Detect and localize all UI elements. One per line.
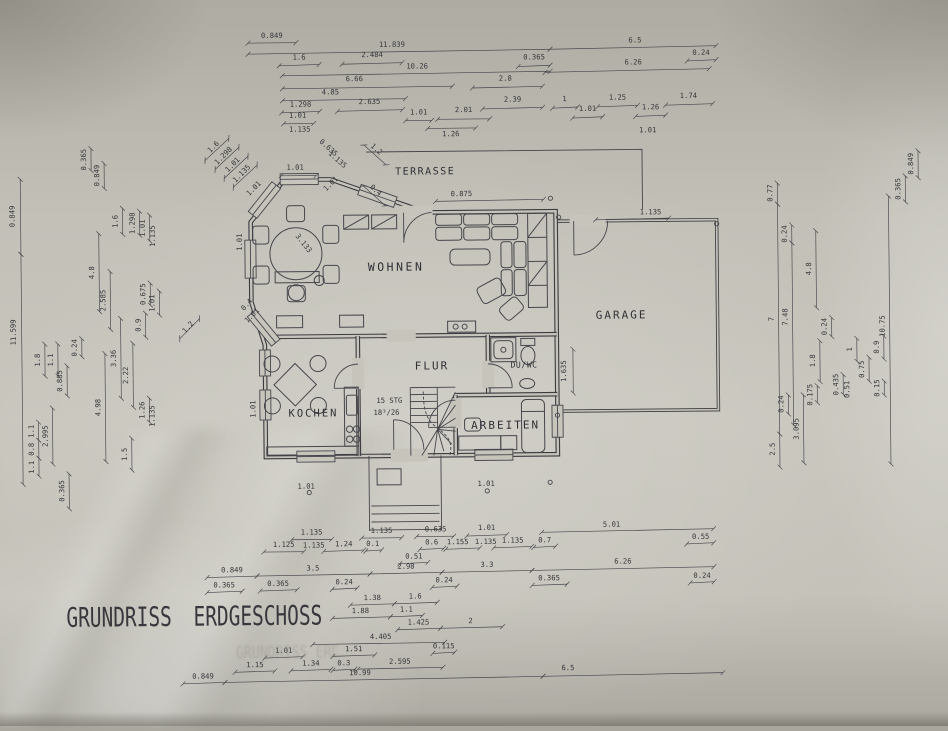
dimension-label: 1.8 <box>808 354 817 367</box>
dimension-label: 1.5 <box>120 448 129 461</box>
dimension-label: 2.585 <box>98 290 107 312</box>
dimension-label: 1.8 <box>33 354 42 367</box>
dimension-label: 0.6 <box>425 537 438 546</box>
dimension-label: 3.095 <box>792 418 801 440</box>
dim-line <box>370 572 442 574</box>
dim-line <box>446 548 480 549</box>
dimension-label: 0.51 <box>405 552 422 561</box>
dim-line <box>366 550 382 551</box>
dimension-label: 6.26 <box>614 556 631 565</box>
dimension-label: 1.01 <box>244 179 263 198</box>
dimension-label: 4.8 <box>804 262 813 275</box>
dimension-label: 1.135 <box>303 540 325 549</box>
dimension-label: 0.365 <box>538 573 560 582</box>
dim-line <box>207 576 257 577</box>
dimension-label: 1.74 <box>680 91 697 100</box>
dimension-label: 1.635 <box>559 360 568 382</box>
corner-marker <box>485 489 489 493</box>
photo-of-floor-plan: 0.84911.8396.51.62.4840.3650.2410.266.26… <box>0 0 948 726</box>
dim-line <box>121 318 122 398</box>
dimension-label: 3.133 <box>294 232 315 255</box>
room-label-duwc: DU/WC <box>510 359 537 369</box>
dim-line <box>598 105 638 106</box>
dimension-label: 4.405 <box>370 632 392 641</box>
dim-line <box>666 104 713 105</box>
dimension-label: 1.01 <box>147 294 156 311</box>
window <box>475 449 513 460</box>
dimension-label: 0.55 <box>692 532 709 541</box>
dim-line <box>532 584 567 585</box>
dim-line <box>282 86 452 89</box>
dimension-label: 10.99 <box>349 668 371 677</box>
dim-line <box>235 671 275 672</box>
dimension-label: 0.8 <box>27 443 36 456</box>
dim-line <box>394 602 437 603</box>
dimension-label: 1.01 <box>579 104 596 113</box>
dimension-label: 11.839 <box>379 40 405 49</box>
dimension-label: 0.365 <box>893 178 902 200</box>
dimension-label: 0.849 <box>221 565 243 574</box>
dimension-label: 2.635 <box>359 97 381 106</box>
dim-line <box>494 546 532 547</box>
dimension-label: 0.51 <box>842 381 851 398</box>
dimension-label: 1.88 <box>352 606 369 615</box>
dimension-label: 0.3 <box>337 658 350 667</box>
dimension-label: 2.484 <box>361 50 383 59</box>
dim-line <box>279 64 319 65</box>
dimension-label: 0.9 <box>134 319 143 332</box>
dim-line <box>472 86 542 88</box>
dimension-label: 1.1 <box>46 354 55 367</box>
dim-line <box>518 65 550 66</box>
dim-line <box>257 574 370 576</box>
dim-line <box>687 60 716 61</box>
dimension-label: 0.24 <box>692 48 709 57</box>
dimension-label: 2.01 <box>455 105 472 114</box>
dimension-label: 1.01 <box>235 234 244 251</box>
dimension-label: 2.39 <box>504 95 521 104</box>
room-label-arbeiten: ARBEITEN <box>471 418 540 432</box>
dimension-label: 0.15 <box>872 379 881 396</box>
stairs-note: 18³/26 <box>373 408 399 417</box>
dimension-label: 2.22 <box>121 367 130 384</box>
dimension-label: 1.1 <box>27 425 36 438</box>
dimension-label: 0.7 <box>538 535 551 544</box>
dimension-label: 1.01 <box>286 163 303 172</box>
dim-line <box>467 535 507 536</box>
dim-line <box>52 408 53 464</box>
dimension-label: 1.135 <box>147 405 156 427</box>
dim-line <box>338 110 403 112</box>
dimension-label: 4.8 <box>87 266 96 279</box>
dimension-label: 1.135 <box>301 527 323 536</box>
dimension-label: 1.26 <box>642 102 659 111</box>
dim-line <box>20 179 21 254</box>
dimension-label: 3.3 <box>480 560 493 569</box>
dim-line <box>433 652 455 653</box>
dimension-label: 1.6 <box>293 53 306 62</box>
dim-line <box>133 343 134 407</box>
window <box>245 240 256 278</box>
dimension-label: 1.01 <box>639 125 656 134</box>
dim-line <box>350 604 394 605</box>
dimension-label: 1.135 <box>371 526 393 535</box>
dimension-label: 1.01 <box>478 523 495 532</box>
wall-unit <box>528 213 548 307</box>
window <box>259 350 270 376</box>
dimension-label: 0.175 <box>805 384 814 406</box>
dimension-label: 3.36 <box>109 350 118 367</box>
dim-line <box>420 548 444 549</box>
annotations: 0.84911.8396.51.62.4840.3650.2410.266.26… <box>6 25 926 688</box>
dim-line <box>260 590 297 591</box>
dimension-label: 0.24 <box>693 571 710 580</box>
corner-marker <box>548 480 552 484</box>
dimension-label: 1.135 <box>502 536 524 545</box>
dim-line <box>105 354 106 462</box>
dim-line <box>441 627 503 629</box>
room-label-kochen: KOCHEN <box>288 407 338 419</box>
room-label-wohnen: WOHNEN <box>368 259 425 274</box>
room-label-terrasse: TERRASSE <box>395 166 455 178</box>
desk-area <box>275 271 364 328</box>
dimension-label: 0.365 <box>523 52 545 61</box>
floor-plan-drawing: 0.84911.8396.51.62.4840.3650.2410.266.26… <box>0 0 948 731</box>
dimension-label: 1.425 <box>408 617 430 626</box>
dimension-label: 1 <box>845 347 854 351</box>
dimension-label: 1.01 <box>138 219 147 236</box>
dim-line <box>636 115 666 116</box>
stairs-note: 15 STG <box>376 396 402 405</box>
dimension-label: 1.26 <box>442 129 459 138</box>
dim-line <box>545 69 709 73</box>
dimension-label: 1.01 <box>477 479 494 488</box>
dim-line <box>110 271 111 329</box>
dimension-label: 0.435 <box>831 374 840 396</box>
dimension-label: 0.849 <box>906 153 915 175</box>
dimension-label: 1.298 <box>128 212 137 234</box>
dimension-label: 2.8 <box>499 74 512 83</box>
sideboards <box>344 215 397 230</box>
dimension-label: 1.26 <box>137 401 146 418</box>
dim-line <box>534 546 556 547</box>
window <box>260 390 271 420</box>
dimension-label: 0.24 <box>780 225 789 242</box>
dimension-label: 0.115 <box>433 641 455 650</box>
dimension-label: 0.675 <box>138 283 147 305</box>
dimension-label: 1.51 <box>345 644 362 653</box>
dim-line <box>553 107 578 108</box>
dim-line <box>332 617 390 619</box>
dim-line <box>442 570 532 572</box>
dimension-label: 0.24 <box>335 577 352 586</box>
plan-title: GRUNDRISS ERDGESCHOSS <box>66 600 322 633</box>
dimension-label: 1 <box>562 94 566 103</box>
dim-line <box>398 628 441 629</box>
dimension-label: 11.599 <box>9 319 18 345</box>
dim-line <box>207 591 242 592</box>
dimension-label: 1.2 <box>180 319 195 335</box>
room-label-garage: GARAGE <box>596 308 648 321</box>
bay-dining-set <box>252 205 339 302</box>
dimension-label: 1.01 <box>289 111 306 120</box>
kitchen-set <box>264 355 360 456</box>
photo-bottom-shadow <box>0 712 948 726</box>
dimension-label: 1.38 <box>364 593 381 602</box>
dim-line <box>687 543 714 544</box>
dimension-label: 1.6 <box>205 139 221 155</box>
dimension-label: 0.365 <box>213 580 235 589</box>
dim-line <box>483 107 543 109</box>
terrace-outline <box>366 149 643 212</box>
dimension-label: 0.365 <box>267 579 289 588</box>
dim-line <box>21 254 23 484</box>
window <box>552 405 563 437</box>
dimension-label: 1.6 <box>111 215 120 228</box>
dim-line <box>324 550 364 551</box>
dim-line <box>183 682 225 683</box>
corner-marker <box>307 490 311 494</box>
room-label-flur: FLUR <box>415 359 450 372</box>
dimension-label: 1.2 <box>369 141 385 156</box>
dimension-label: 1.25 <box>609 93 626 102</box>
dimension-label: 2.995 <box>41 425 50 447</box>
dimension-label: 1.1 <box>400 605 413 614</box>
dimension-label: 7.48 <box>780 308 789 325</box>
dimension-label: 1.24 <box>335 539 352 548</box>
dimension-label: 6.5 <box>561 663 574 672</box>
dimension-label: 1.298 <box>290 100 312 109</box>
dimension-label: 0.849 <box>92 165 101 187</box>
dim-line <box>291 669 331 670</box>
dimension-label: 1.01 <box>410 107 427 116</box>
dimension-label: 4.98 <box>93 399 102 416</box>
dimension-label: 0.849 <box>192 672 214 681</box>
dim-line <box>332 588 357 589</box>
dimension-label: 1.135 <box>640 207 662 216</box>
dim-line <box>543 673 723 677</box>
dim-line <box>342 63 402 65</box>
dim-line <box>816 231 817 308</box>
dimension-label: 10.26 <box>406 61 428 70</box>
dimension-label: 6.26 <box>624 57 641 66</box>
dim-line <box>573 117 603 118</box>
dimension-label: 1.135 <box>289 125 311 134</box>
dim-line <box>550 46 716 50</box>
dimension-label: 1.135 <box>475 537 497 546</box>
corner-marker <box>548 196 552 200</box>
dimension-label: 0.9 <box>872 341 881 354</box>
dimension-label: 2.5 <box>768 443 777 456</box>
entrance-porch <box>369 455 442 531</box>
dim-line <box>888 196 891 464</box>
dimension-label: 0.635 <box>425 524 447 533</box>
dimension-label: 1.135 <box>148 225 157 247</box>
dimension-label: 0.24 <box>820 318 829 335</box>
dimension-label: 7 <box>767 317 776 321</box>
dimension-label: 4.85 <box>322 87 339 96</box>
dimension-label: 0.875 <box>451 189 473 198</box>
dimension-label: 1.125 <box>273 540 295 549</box>
dimension-label: 2.595 <box>389 657 411 666</box>
dim-line <box>792 243 794 425</box>
dimension-label: 0.75 <box>857 361 866 378</box>
dim-line <box>225 676 543 682</box>
dimension-label: 6.5 <box>628 35 641 44</box>
dimension-label: 2 <box>468 616 472 625</box>
dim-line <box>690 582 714 583</box>
dimension-label: 0.365 <box>57 480 66 502</box>
dimension-label: 6.66 <box>346 74 363 83</box>
dimension-label: 0.24 <box>70 339 79 356</box>
staircase <box>410 387 456 455</box>
dimension-label: 1.01 <box>248 400 257 417</box>
window <box>280 173 318 184</box>
dimension-label: 0.365 <box>79 149 88 171</box>
dimension-label: 10.75 <box>878 315 887 337</box>
ghost-bleedthrough-title: GRUNDRISS ERDGESCHOSS <box>236 642 338 663</box>
dimension-label: 0.885 <box>55 370 64 392</box>
dim-line <box>542 529 714 533</box>
dimension-label: 0.849 <box>261 31 283 40</box>
dimension-label: 5.01 <box>603 520 620 529</box>
dimension-label: 1.155 <box>447 537 469 546</box>
dimension-label: 1.6 <box>409 592 422 601</box>
sofa-group <box>436 213 527 332</box>
dim-line <box>435 199 543 201</box>
dimension-label: 1.01 <box>297 482 314 491</box>
dimension-label: 0.24 <box>776 395 785 412</box>
dim-line <box>532 567 714 571</box>
dim-line <box>432 586 457 587</box>
dimension-label: 0.77 <box>765 184 774 201</box>
dim-line <box>333 655 375 656</box>
dimension-label: 3.5 <box>306 563 319 572</box>
window <box>297 451 335 462</box>
dimension-label: 1.1 <box>27 461 36 474</box>
dimension-label: 0.24 <box>435 575 452 584</box>
dimension-label: 2.98 <box>397 562 414 571</box>
dimension-label: 0.1 <box>366 539 379 548</box>
dim-line <box>803 395 804 463</box>
dimension-label: 0.849 <box>7 206 16 228</box>
